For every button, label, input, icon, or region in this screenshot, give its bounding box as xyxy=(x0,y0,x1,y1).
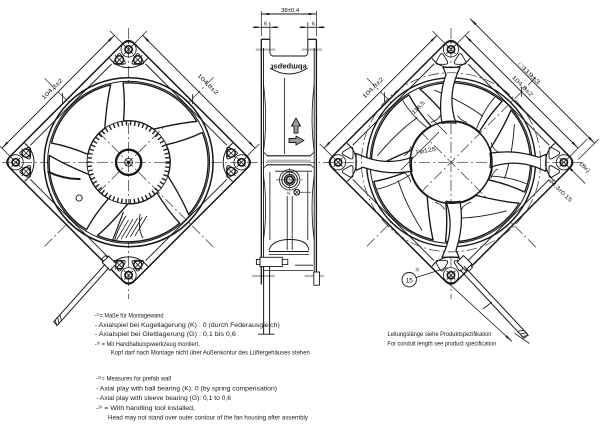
svg-text:38±0.4: 38±0.4 xyxy=(281,8,300,14)
svg-text:K: K xyxy=(287,191,290,196)
svg-text:-¹⁾= Maße für Montagewand: -¹⁾= Maße für Montagewand xyxy=(95,312,164,319)
svg-text:Head may not stand over outer: Head may not stand over outer contour of… xyxy=(108,414,309,421)
svg-text:-¹⁾= Measures for prefab wall: -¹⁾= Measures for prefab wall xyxy=(96,375,171,382)
svg-text:- Axialspiel bei Kugellagerung: - Axialspiel bei Kugellagerung (K) : 0 (… xyxy=(95,322,280,329)
svg-text:15: 15 xyxy=(406,277,413,284)
svg-text:ebmpapst: ebmpapst xyxy=(270,63,306,72)
svg-text:Kopf darf nach Montage nicht ü: Kopf darf nach Montage nicht über Außenk… xyxy=(111,350,311,357)
svg-text:-³⁾ = With handling tool insta: -³⁾ = With handling tool installed, xyxy=(96,405,195,412)
svg-text:- Axial play with sleeve beari: - Axial play with sleeve bearing (G): 0,… xyxy=(96,395,232,402)
svg-text:- Axialspiel bei Gleitlagerung: - Axialspiel bei Gleitlagerung (G) : 0,1… xyxy=(95,331,237,338)
svg-text:For conduit length see product: For conduit length see product specifica… xyxy=(387,340,497,347)
svg-text:- Axial play with ball bearing: - Axial play with ball bearing (K): 0 (b… xyxy=(96,386,277,393)
svg-text:Leitungslänge siehe Produktspe: Leitungslänge siehe Produktspezifikation xyxy=(388,331,493,338)
svg-text:-³⁾ = Mit Handhabungswerkzeug: -³⁾ = Mit Handhabungswerkzeug montiert, xyxy=(95,341,200,348)
